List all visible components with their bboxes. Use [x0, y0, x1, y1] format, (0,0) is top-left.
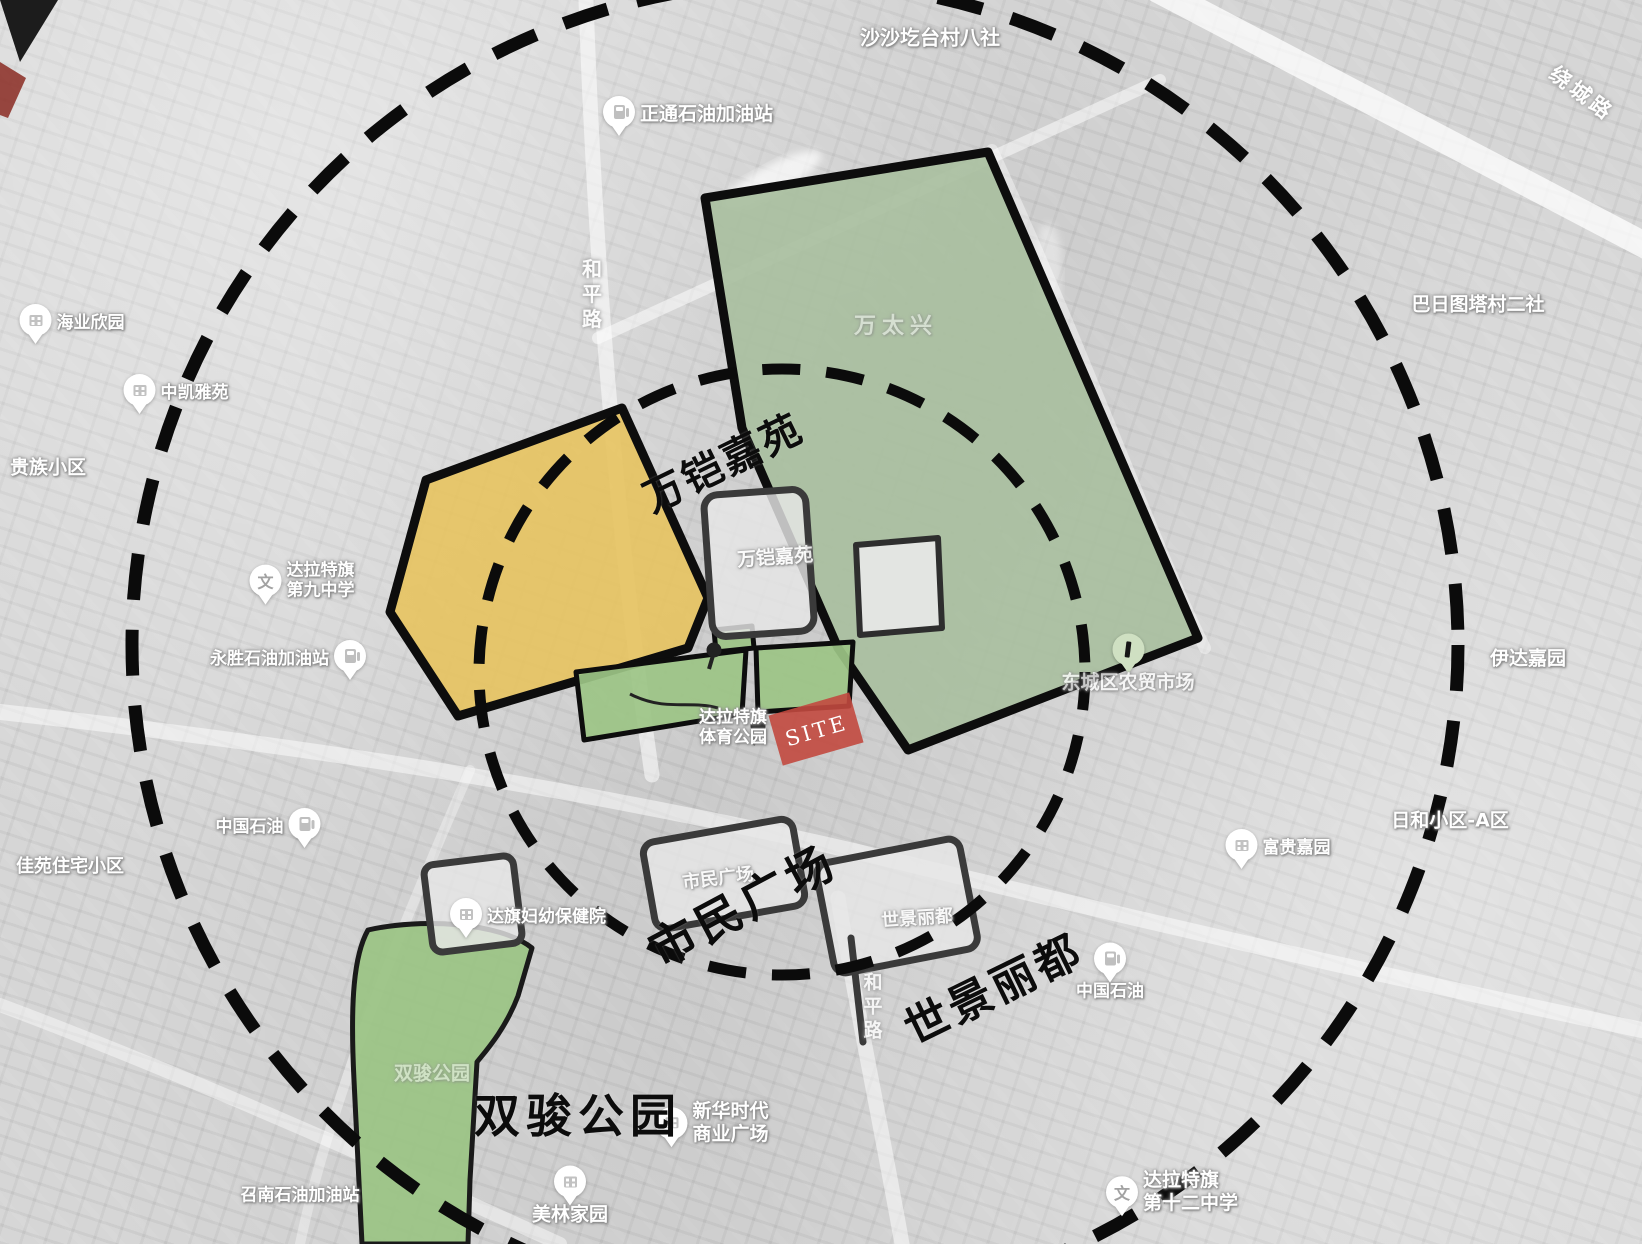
- zone-green-notch-block: [856, 538, 942, 635]
- poi-zhaonan: 召南石油加油站: [241, 1181, 360, 1206]
- poi-guizu: 贵族小区: [10, 453, 86, 480]
- road-label-heping-north: 和平路: [577, 259, 606, 334]
- poi-label-line2: 体育公园: [699, 728, 767, 748]
- gas-station-icon: [603, 96, 635, 128]
- poi-label: 正通石油加油站: [640, 99, 773, 126]
- poi-label: 达旗妇幼保健院: [487, 902, 606, 927]
- gas-station-icon: [334, 640, 366, 672]
- poi-label-line2: 第九中学: [287, 581, 355, 601]
- poi-label-line1: 达拉特旗: [287, 561, 355, 581]
- map-overlay-svg: SITE: [0, 0, 1642, 1244]
- poi-zhongkai: 中凯雅苑: [124, 374, 229, 406]
- poi-label-line1: 达拉特旗: [699, 708, 767, 728]
- building-icon: [1226, 829, 1258, 861]
- poi-label: 万太兴: [854, 308, 938, 340]
- school-icon: 文: [1106, 1176, 1138, 1208]
- building-icon: [124, 374, 156, 406]
- school-icon: 文: [250, 565, 282, 597]
- poi-yongsheng: 永胜石油加油站: [210, 640, 366, 672]
- poi-petrochina-west: 中国石油: [216, 808, 321, 840]
- poi-zhengtong: 正通石油加油站: [603, 96, 773, 128]
- poi-dongcheng-market: 东城区农贸市场: [1061, 634, 1194, 695]
- poi-label: 日和小区-A区: [1391, 806, 1509, 833]
- poi-label: 世景丽都: [880, 902, 954, 933]
- poi-label: 永胜石油加油站: [210, 644, 329, 669]
- gas-station-icon: [1094, 943, 1126, 975]
- poi-wankai-label: 万铠嘉苑: [736, 540, 814, 572]
- poi-shuangjun-label: 双骏公园: [394, 1059, 470, 1086]
- poi-shasha: 沙沙圪台村八社: [860, 22, 1000, 51]
- poi-label-line2: 第十二中学: [1143, 1192, 1238, 1215]
- poi-wantaixing: 万太兴: [854, 308, 938, 340]
- poi-sports-park: 达拉特旗 体育公园: [699, 708, 767, 749]
- poi-label: 东城区农贸市场: [1061, 668, 1194, 695]
- poi-yida: 伊达嘉园: [1490, 644, 1566, 671]
- building-icon: [554, 1166, 586, 1198]
- gas-station-icon: [289, 808, 321, 840]
- poi-label-line1: 达拉特旗: [1143, 1169, 1238, 1192]
- poi-label: 伊达嘉园: [1490, 644, 1566, 671]
- poi-label-line1: 新华时代: [692, 1100, 768, 1123]
- poi-label: 贵族小区: [10, 453, 86, 480]
- poi-label: 沙沙圪台村八社: [860, 22, 1000, 51]
- poi-label: 中国石油: [216, 812, 284, 837]
- poi-label: 佳苑住宅小区: [16, 852, 124, 878]
- poi-haiye: 海业欣园: [20, 304, 125, 336]
- poi-bari: 巴日图塔村二社: [1411, 290, 1544, 317]
- poi-fugui: 富贵嘉园: [1226, 829, 1331, 861]
- poi-dala-no12-school: 文 达拉特旗 第十二中学: [1106, 1169, 1238, 1215]
- poi-label: 召南石油加油站: [241, 1181, 360, 1206]
- building-icon: [450, 898, 482, 930]
- poi-label: 巴日图塔村二社: [1411, 290, 1544, 317]
- building-icon: [20, 304, 52, 336]
- poi-label-line2: 商业广场: [692, 1123, 768, 1146]
- poi-jiayuan: 佳苑住宅小区: [16, 852, 124, 878]
- poi-fuyou-hospital: 达旗妇幼保健院: [450, 898, 606, 930]
- poi-shijing-label: 世景丽都: [880, 902, 954, 933]
- road-label-heping-south: 和平路: [859, 972, 886, 1044]
- poi-rihe: 日和小区-A区: [1391, 806, 1509, 833]
- poi-label: 中凯雅苑: [161, 378, 229, 403]
- site-analysis-map: SITE 沙沙圪台村八社 正通石油加油站 海业欣园 中凯雅苑 贵族小区 文 达拉…: [0, 0, 1642, 1244]
- poi-label: 富贵嘉园: [1263, 833, 1331, 858]
- corner-shadow-shape: [0, 0, 58, 62]
- poi-meilin: 美林家园: [532, 1166, 608, 1227]
- poi-label: 海业欣园: [57, 308, 125, 333]
- poi-dala-no9-school: 文 达拉特旗 第九中学: [250, 561, 355, 602]
- poi-label: 双骏公园: [394, 1059, 470, 1086]
- poi-label: 万铠嘉苑: [736, 540, 814, 572]
- market-icon: [1112, 634, 1144, 666]
- corner-red-shape: [0, 62, 26, 118]
- annotation-shuangjun: 双骏公园: [474, 1080, 682, 1146]
